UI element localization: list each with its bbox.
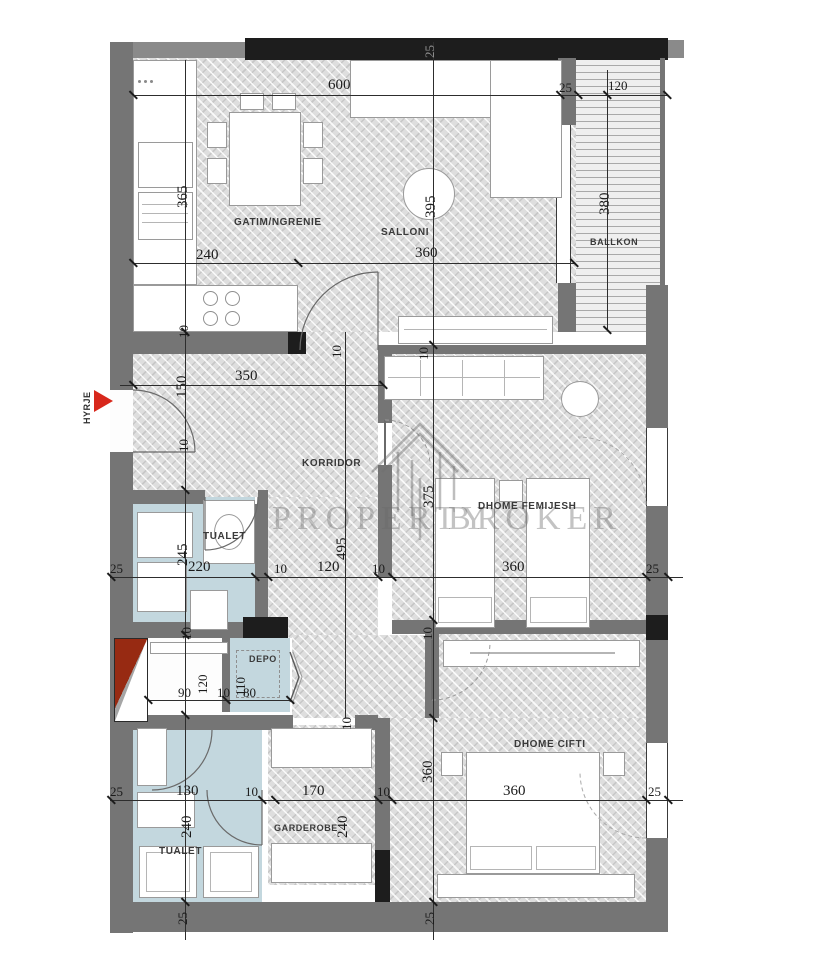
counter-dot-2 <box>144 80 147 83</box>
floor-corridor-lower <box>292 635 425 718</box>
label-toilet-bottom: TUALET <box>159 846 202 857</box>
dim-10: 10 <box>330 345 343 358</box>
floor-plan-canvas: PROPERTY BROKER GATIM/NGRENIE SALLONI BA… <box>0 0 817 960</box>
master-wardrobe-rail <box>470 652 615 654</box>
label-toilet-mid: TUALET <box>203 531 246 542</box>
label-depo: DEPO <box>249 654 277 664</box>
oven-line-3 <box>142 222 188 223</box>
wall-toilet-mid-right <box>255 504 268 635</box>
wall-toilet-mid-top-a <box>133 490 205 504</box>
master-nightstand-1 <box>441 752 463 776</box>
dim-10: 10 <box>417 347 430 360</box>
wall-master-left-upper <box>425 634 439 718</box>
kids-bed-1-pillow <box>438 597 492 623</box>
toilet-mid-wc <box>190 590 228 630</box>
label-corridor: KORRIDOR <box>302 458 361 469</box>
dim-living-w-360: 360 <box>415 246 438 261</box>
wall-bottom <box>110 902 668 932</box>
wall-right-c <box>646 640 668 743</box>
dim-kitchen-h-365: 365 <box>176 186 191 209</box>
dim-10: 10 <box>377 785 390 798</box>
dim-botwall-25a: 25 <box>176 912 189 925</box>
dim-balcony-wall-25: 25 <box>559 81 572 94</box>
dim-balcony-h-380: 380 <box>598 193 613 216</box>
dim-botwall-25b: 25 <box>423 912 436 925</box>
dim-master-w-360: 360 <box>503 784 526 799</box>
dim-mid-25l: 25 <box>110 562 123 575</box>
dim-10: 10 <box>421 627 434 640</box>
wall-balcony-left-bottom <box>558 283 576 332</box>
kids-wardrobe-h2 <box>462 360 463 396</box>
dim-bot-25l: 25 <box>110 785 123 798</box>
wall-toilet-mid-top-b <box>258 490 268 504</box>
dim-10: 10 <box>372 562 385 575</box>
toilet-bottom-shower-2-inner <box>210 852 252 892</box>
dining-chair-2 <box>207 158 227 184</box>
kids-wardrobe-h1 <box>420 360 421 396</box>
dining-chair-3 <box>303 122 323 148</box>
dim-master-h-360: 360 <box>421 761 436 784</box>
kids-chair <box>561 381 599 417</box>
wall-top-corner <box>668 40 684 58</box>
shaft-red <box>114 638 148 722</box>
niche-shelf <box>150 642 228 654</box>
wall-black-block-mid <box>243 617 288 638</box>
stove-burner-4 <box>225 311 240 326</box>
kids-room-window <box>646 428 668 506</box>
dim-kitchen-w-240: 240 <box>196 248 219 263</box>
wall-kitchen-bottom-cap <box>288 332 306 354</box>
wardrobe-closet-bottom <box>271 843 372 883</box>
balcony-rail <box>660 58 665 332</box>
dim-10: 10 <box>274 562 287 575</box>
dim-wardrobe-240: 240 <box>336 816 351 839</box>
dim-living-h-395: 395 <box>424 196 439 219</box>
wall-top <box>245 38 668 60</box>
kids-wardrobe-h3 <box>504 360 505 396</box>
label-kids-room: DHOME FEMIJESH <box>478 501 576 512</box>
stove-burner-1 <box>203 291 218 306</box>
wall-right-black <box>646 615 668 640</box>
dim-entry-150: 150 <box>175 376 190 399</box>
dim-kids-375: 375 <box>422 486 437 509</box>
dim-kids-w-360: 360 <box>502 560 525 575</box>
dim-corridor-495: 495 <box>335 538 350 561</box>
dim-10: 10 <box>340 717 353 730</box>
wall-right-a <box>646 330 668 428</box>
dim-topwall-25: 25 <box>423 45 436 58</box>
dimline-kitchen-bottom <box>133 263 575 264</box>
kids-wardrobe-rail <box>388 377 540 378</box>
dining-table <box>229 112 301 206</box>
stove-burner-3 <box>203 311 218 326</box>
master-pillow-1 <box>470 846 532 870</box>
label-entrance: HYRJE <box>82 391 92 424</box>
dim-10: 10 <box>245 785 258 798</box>
entrance-opening <box>110 390 133 452</box>
dimline-niche <box>148 700 290 701</box>
dim-wardrobe-170: 170 <box>302 784 325 799</box>
tv-unit <box>398 316 553 344</box>
entrance-arrow-icon <box>94 390 113 412</box>
counter-dot-3 <box>150 80 153 83</box>
sofa-chaise <box>490 60 562 198</box>
stove-burner-2 <box>225 291 240 306</box>
dim-toilet2-130: 130 <box>176 784 199 799</box>
label-balcony: BALLKON <box>590 237 638 247</box>
counter-dot-1 <box>138 80 141 83</box>
wall-right-d <box>646 838 668 902</box>
kids-bed-2-pillow <box>530 597 587 623</box>
wardrobe-closet-top <box>271 728 372 768</box>
dimline-top <box>133 95 668 96</box>
dim-mid-25r: 25 <box>646 562 659 575</box>
dim-10: 10 <box>177 325 190 338</box>
master-pillow-2 <box>536 846 596 870</box>
tv-unit-line <box>404 329 547 330</box>
dim-mid-220: 220 <box>188 560 211 575</box>
dining-chair-1 <box>207 122 227 148</box>
dining-chair-4 <box>303 158 323 184</box>
dimline-middle <box>110 577 683 578</box>
master-nightstand-2 <box>603 752 625 776</box>
label-master-room: DHOME CIFTI <box>514 739 586 750</box>
dim-corridor-350: 350 <box>235 369 258 384</box>
dim-depo-80: 80 <box>243 686 256 699</box>
oven-line-2 <box>142 213 188 214</box>
wall-kitchen-bottom <box>133 332 288 354</box>
toilet-mid-washer <box>137 562 187 612</box>
toilet-bottom-sink <box>137 728 167 786</box>
dim-10: 10 <box>217 686 230 699</box>
master-dresser <box>437 874 635 898</box>
wall-wardrobe-master-divider-black <box>375 850 390 902</box>
label-wardrobe-room: GARDEROBE <box>274 823 338 833</box>
dim-niche-120: 120 <box>196 675 209 695</box>
kids-nightstand <box>499 480 523 502</box>
dim-toilet2-240: 240 <box>180 816 195 839</box>
label-living: SALLONI <box>381 227 429 238</box>
dim-10: 10 <box>177 439 190 452</box>
label-kitchen: GATIM/NGRENIE <box>234 217 322 228</box>
dimline-bottom <box>110 800 683 801</box>
toilet-bottom-shower-1-inner <box>146 852 190 892</box>
dim-10: 10 <box>180 627 193 640</box>
dimline-mid-col <box>345 332 346 718</box>
kids-wardrobe <box>384 356 544 400</box>
dim-bot-25r: 25 <box>648 785 661 798</box>
dim-balcony-120: 120 <box>608 79 628 92</box>
dim-niche-90: 90 <box>178 686 191 699</box>
dim-mid-120: 120 <box>317 560 340 575</box>
dim-top-600: 600 <box>328 78 351 93</box>
